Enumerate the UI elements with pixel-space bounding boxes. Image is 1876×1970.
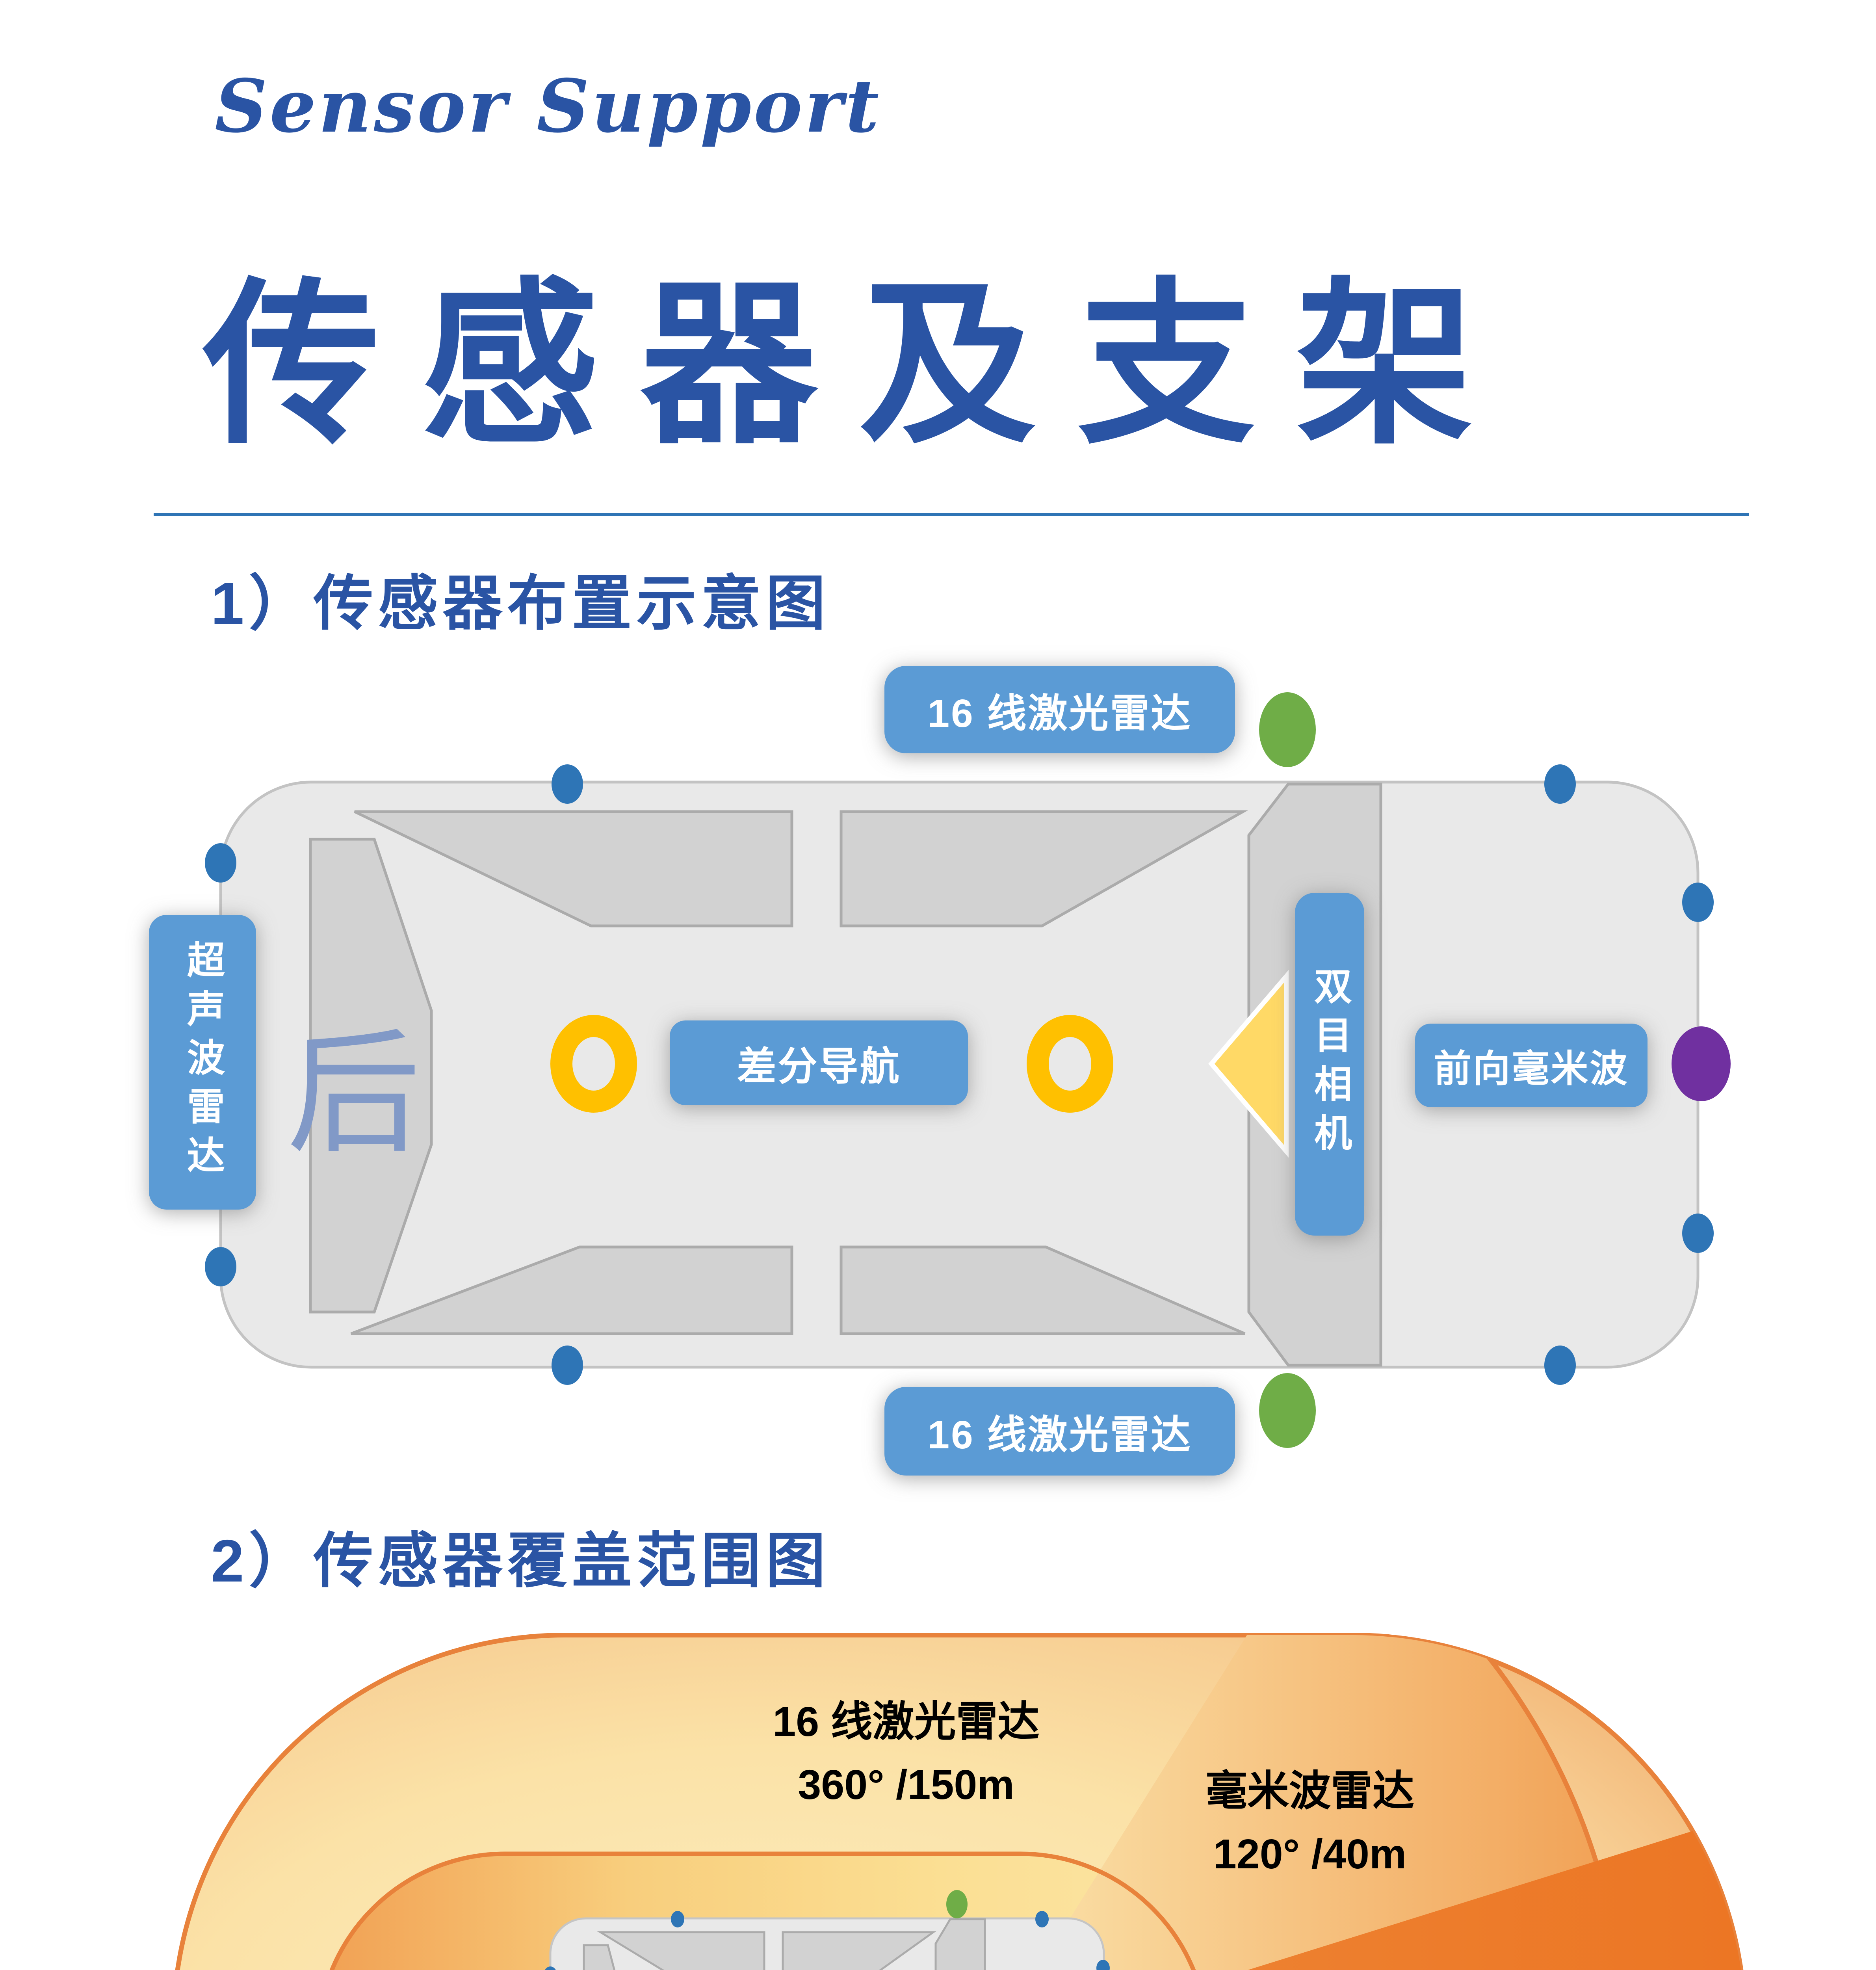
section2-heading: 2）传感器覆盖范围图 xyxy=(211,1512,830,1599)
lidar-dot-top xyxy=(1259,692,1316,767)
section1-heading: 1）传感器布置示意图 xyxy=(211,555,830,641)
small-lidar-dot-top xyxy=(946,1890,968,1918)
page: Sensor Support 传感器及支架 1）传感器布置示意图 2）传感器覆盖… xyxy=(0,0,1876,1970)
title-divider xyxy=(154,513,1749,516)
coverage-lidar-top-name: 16 线激光雷达 xyxy=(773,1690,1039,1753)
rear-marker: 后 xyxy=(287,985,421,1179)
label-front-mmwave: 前向毫米波 xyxy=(1415,1024,1648,1107)
coverage-label-lidar-top: 16 线激光雷达 360° /150m xyxy=(689,1690,1123,1816)
label-stereo-camera: 双目相机 xyxy=(1295,893,1364,1236)
coverage-mmwave-top-name: 毫米波雷达 xyxy=(1205,1760,1414,1823)
label-differential-nav: 差分导航 xyxy=(670,1020,968,1105)
label-ultrasonic-radar: 超声波雷达 xyxy=(149,915,256,1210)
label-lidar-bottom: 16 线激光雷达 xyxy=(884,1387,1235,1476)
label-lidar-top: 16 线激光雷达 xyxy=(884,666,1235,753)
coverage-mmwave-top-spec: 120° /40m xyxy=(1213,1823,1406,1886)
page-title: 传感器及支架 xyxy=(203,221,1515,478)
mmwave-dot-front xyxy=(1672,1026,1731,1101)
coverage-label-mmwave-top: 毫米波雷达 120° /40m xyxy=(1123,1760,1497,1886)
coverage-lidar-top-spec: 360° /150m xyxy=(798,1753,1014,1816)
lidar-dot-bottom xyxy=(1259,1373,1316,1448)
brand-script: Sensor Support xyxy=(215,63,881,149)
